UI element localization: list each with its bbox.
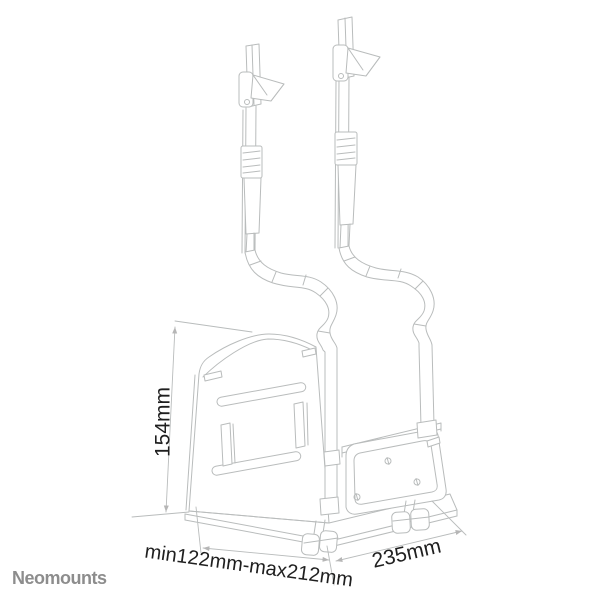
dimension-label-width: 235mm bbox=[370, 535, 443, 573]
right-strap bbox=[333, 17, 437, 438]
slot-vertical-right bbox=[294, 402, 305, 448]
wing-screw-right bbox=[391, 512, 410, 534]
product-diagram-page: 154mm min122mm-max212mm 235mm Neomounts bbox=[0, 0, 600, 600]
slot-vertical-left bbox=[221, 423, 232, 466]
wing-screw-left bbox=[301, 533, 320, 555]
left-strap-foot bbox=[320, 497, 339, 515]
dimension-label-height: 154mm bbox=[152, 387, 175, 457]
left-strap-pivot bbox=[245, 100, 250, 105]
right-strap-curve bbox=[339, 246, 434, 427]
brand-logo: Neomounts bbox=[12, 568, 107, 588]
right-strap-clip bbox=[417, 420, 437, 438]
left-strap-band bbox=[244, 178, 261, 234]
wing-screw-right-lobe bbox=[410, 509, 429, 531]
right-strap-pivot bbox=[339, 74, 344, 79]
cpu-holder-technical-drawing: 154mm min122mm-max212mm 235mm Neomounts bbox=[0, 0, 600, 600]
side-panel bbox=[342, 423, 446, 514]
left-strap-clip bbox=[324, 450, 340, 466]
right-strap-band bbox=[338, 165, 356, 225]
wing-screw-left-lobe bbox=[319, 530, 338, 552]
